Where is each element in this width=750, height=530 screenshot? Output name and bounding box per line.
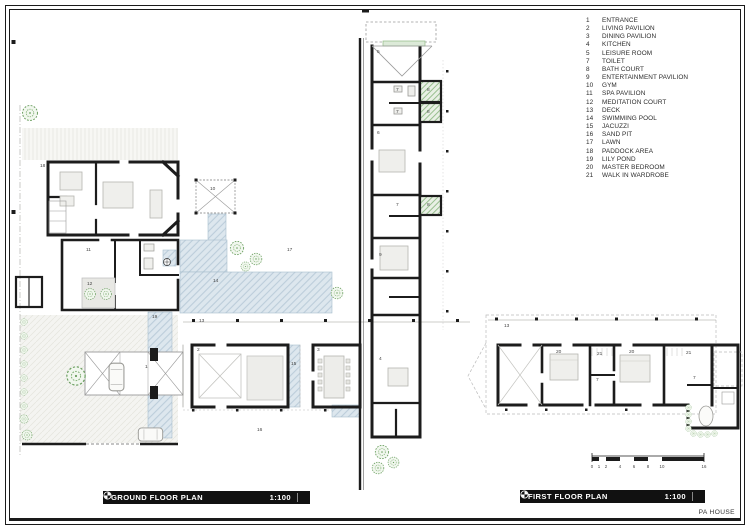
legend-item-label: KITCHEN (602, 41, 631, 49)
legend-item-number: 2 (586, 25, 602, 33)
legend-item-label: LILY POND (602, 156, 636, 164)
first-floor-scale: 1:100 (665, 492, 692, 501)
legend-item-number: 19 (586, 156, 602, 164)
plan-label: 21 (686, 350, 692, 356)
legend-item: 4KITCHEN (586, 41, 746, 49)
legend-item-number: 4 (586, 41, 602, 49)
legend-item-number: 9 (586, 74, 602, 82)
legend-item-label: SAND PIT (602, 131, 632, 139)
plan-label: 1 (145, 364, 148, 370)
legend-item-label: BATH COURT (602, 66, 644, 74)
plan-label: 13 (504, 323, 510, 329)
plan-label: 16 (257, 427, 263, 433)
legend-item-label: GYM (602, 82, 617, 90)
legend-item: 3DINING PAVILION (586, 33, 746, 41)
scale-tick: 4 (619, 464, 622, 469)
legend-item-label: LEISURE ROOM (602, 50, 652, 58)
plan-label: 11 (86, 247, 91, 253)
plan-label: 4 (379, 356, 382, 362)
ground-floor-title: GROUND FLOOR PLAN (103, 493, 270, 502)
plan-label: 21 (597, 351, 603, 357)
legend-item: 17LAWN (586, 139, 746, 147)
legend-item-number: 18 (586, 148, 602, 156)
legend-item-number: 20 (586, 164, 602, 172)
ff-roof-outline (468, 315, 742, 414)
project-name: PA HOUSE (650, 509, 735, 516)
legend-item-number: 12 (586, 99, 602, 107)
legend-item-label: MASTER BEDROOM (602, 164, 665, 172)
plan-label: 15 (291, 361, 297, 367)
legend-item: 10GYM (586, 82, 746, 90)
legend-item: 20MASTER BEDROOM (586, 164, 746, 172)
water-areas (148, 214, 360, 438)
plan-label: 14 (213, 278, 219, 284)
legend-item-number: 5 (586, 50, 602, 58)
horizontal-wing-walls (183, 345, 420, 437)
legend-item-label: LIVING PAVILION (602, 25, 655, 33)
first-floor-title: FIRST FLOOR PLAN (520, 492, 665, 501)
legend-item-label: ENTERTAINMENT PAVILION (602, 74, 688, 82)
legend-item-number: 10 (586, 82, 602, 90)
plan-label: 7 (693, 375, 696, 381)
plan-label: 7 (396, 109, 399, 115)
scale-bar: 0124681016 (591, 453, 707, 469)
plan-label: 17 (287, 247, 293, 253)
legend-item-number: 13 (586, 107, 602, 115)
legend-item: 5LEISURE ROOM (586, 50, 746, 58)
plan-label: 19 (152, 314, 158, 320)
ground-floor-title-bar: GROUND FLOOR PLAN 1:100 (103, 491, 310, 504)
first-floor-plan (468, 315, 742, 437)
plan-label: 8 (427, 87, 430, 93)
scale-tick: 6 (633, 464, 636, 469)
scale-tick: 2 (605, 464, 608, 469)
legend-item-number: 8 (586, 66, 602, 74)
bath-courts (420, 81, 441, 215)
plan-label: 8 (427, 109, 430, 115)
corridor-spine (360, 38, 364, 490)
plan-label: 7 (396, 202, 399, 208)
scale-tick: 1 (598, 464, 601, 469)
legend-item-label: TOILET (602, 58, 625, 66)
legend-item-label: LAWN (602, 139, 621, 147)
legend-item: 9ENTERTAINMENT PAVILION (586, 74, 746, 82)
legend-item-number: 7 (586, 58, 602, 66)
legend-item-number: 16 (586, 131, 602, 139)
ff-deck-columns (495, 318, 698, 412)
legend-item: 2LIVING PAVILION (586, 25, 746, 33)
legend: 1ENTRANCE2LIVING PAVILION3DINING PAVILIO… (586, 17, 746, 180)
title-bar-divider (692, 492, 693, 501)
legend-item-number: 11 (586, 90, 602, 98)
legend-item-label: SWIMMING POOL (602, 115, 657, 123)
legend-item: 12MEDITATION COURT (586, 99, 746, 107)
scale-tick: 8 (647, 464, 650, 469)
scale-tick-labels: 0124681016 (591, 464, 707, 469)
legend-item-number: 17 (586, 139, 602, 147)
plan-label: 7 (396, 87, 399, 93)
legend-item-number: 15 (586, 123, 602, 131)
title-bar-divider (297, 493, 298, 502)
legend-item-number: 1 (586, 17, 602, 25)
scale-tick: 10 (660, 464, 665, 469)
plan-label: 8 (427, 202, 430, 208)
legend-item-label: MEDITATION COURT (602, 99, 666, 107)
plan-label: 18 (40, 163, 46, 169)
legend-item-number: 14 (586, 115, 602, 123)
legend-item-label: PADDOCK AREA (602, 148, 653, 156)
legend-item: 15JACUZZI (586, 123, 746, 131)
legend-item: 18PADDOCK AREA (586, 148, 746, 156)
legend-item: 7TOILET (586, 58, 746, 66)
entrance-canopy (85, 348, 183, 399)
gym-pavilion (195, 179, 237, 215)
legend-item: 8BATH COURT (586, 66, 746, 74)
ff-open-room-x (498, 345, 542, 405)
plan-label: 6 (377, 130, 380, 136)
scale-tick: 16 (702, 464, 707, 469)
legend-item: 1ENTRANCE (586, 17, 746, 25)
legend-item-label: DINING PAVILION (602, 33, 656, 41)
legend-item-number: 3 (586, 33, 602, 41)
legend-item: 11SPA PAVILION (586, 90, 746, 98)
legend-item-label: DECK (602, 107, 620, 115)
legend-item-label: JACUZZI (602, 123, 629, 131)
plan-label: 3 (317, 347, 320, 353)
legend-item-label: SPA PAVILION (602, 90, 645, 98)
legend-item: 16SAND PIT (586, 131, 746, 139)
legend-item-number: 21 (586, 172, 602, 180)
section-markers (12, 40, 16, 214)
plan-label: 5 (377, 49, 380, 55)
legend-item: 13DECK (586, 107, 746, 115)
upper-left-furniture (49, 172, 162, 233)
plan-label: 9 (379, 252, 382, 258)
plan-label: 10 (210, 186, 216, 192)
plan-label: 20 (556, 349, 562, 355)
legend-item: 14SWIMMING POOL (586, 115, 746, 123)
plan-label: 12 (87, 281, 93, 287)
first-floor-title-bar: FIRST FLOOR PLAN 1:100 (520, 490, 705, 503)
legend-item: 19LILY POND (586, 156, 746, 164)
ground-floor-plan (12, 9, 471, 490)
plan-label: 20 (629, 349, 635, 355)
drawing-sheet: 0124681016 18578786789101112171419131215… (0, 0, 750, 530)
legend-item-label: ENTRANCE (602, 17, 638, 25)
legend-item-label: WALK IN WARDROBE (602, 172, 669, 180)
scale-tick: 0 (591, 464, 594, 469)
plan-label: 2 (197, 347, 200, 353)
legend-item: 21WALK IN WARDROBE (586, 172, 746, 180)
ground-floor-scale: 1:100 (270, 493, 297, 502)
living-dining-furniture (199, 354, 408, 400)
plan-label: 7 (596, 377, 599, 383)
plan-label: 13 (199, 318, 205, 324)
